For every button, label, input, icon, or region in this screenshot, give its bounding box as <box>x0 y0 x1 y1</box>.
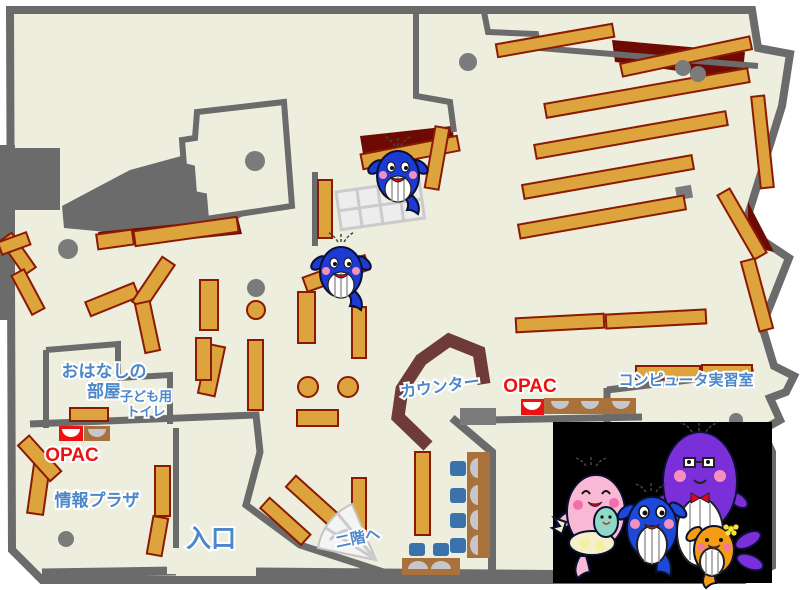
label-kids-toilet: 子ども用 <box>120 389 172 404</box>
label-kids-toilet: トイレ <box>126 404 165 419</box>
bookshelf <box>200 280 218 330</box>
bookshelf <box>298 292 315 343</box>
label-storytelling-room: 部屋 <box>87 381 121 401</box>
chair <box>450 513 466 528</box>
bookshelf <box>352 307 366 358</box>
column <box>459 53 477 71</box>
opac-terminal <box>59 426 110 441</box>
service-area <box>14 148 60 210</box>
chair <box>409 543 425 556</box>
service-area <box>0 145 15 320</box>
label-storytelling-room: おはなしの <box>62 362 147 381</box>
round-table <box>298 377 318 397</box>
bookshelf <box>415 452 430 535</box>
mascot-family-photo <box>552 421 772 588</box>
column <box>247 279 265 297</box>
bookshelf <box>248 340 263 410</box>
chair <box>450 488 466 503</box>
library-floor-map: おはなしの 部屋 子ども用 トイレ OPAC 情報プラザ 入口 二階へ カウンタ… <box>0 0 800 590</box>
column <box>58 239 78 259</box>
bookshelf <box>155 466 170 516</box>
floor-plan-svg: おはなしの 部屋 子ども用 トイレ OPAC 情報プラザ 入口 二階へ カウンタ… <box>0 0 800 590</box>
label-entrance: 入口 <box>186 525 236 553</box>
label-opac-main: OPAC <box>503 376 557 397</box>
wall-counter-back <box>488 417 642 420</box>
bookshelf <box>196 338 211 380</box>
column <box>58 531 74 547</box>
label-computer-room: コンピュータ実習室 <box>618 371 753 389</box>
bookshelf <box>70 408 108 421</box>
chair <box>450 461 466 476</box>
column <box>675 60 691 76</box>
door-gap <box>167 548 183 574</box>
chair <box>433 543 449 556</box>
table <box>297 410 338 426</box>
label-info-plaza: 情報プラザ <box>55 490 140 510</box>
column <box>245 151 265 171</box>
chair <box>450 538 466 553</box>
round-table <box>338 377 358 397</box>
counter-back-table <box>460 408 496 425</box>
bookshelf <box>318 180 332 238</box>
round-table <box>247 301 265 319</box>
label-opac-children: OPAC <box>45 445 99 466</box>
column <box>690 66 706 82</box>
opac-terminal <box>521 398 636 415</box>
